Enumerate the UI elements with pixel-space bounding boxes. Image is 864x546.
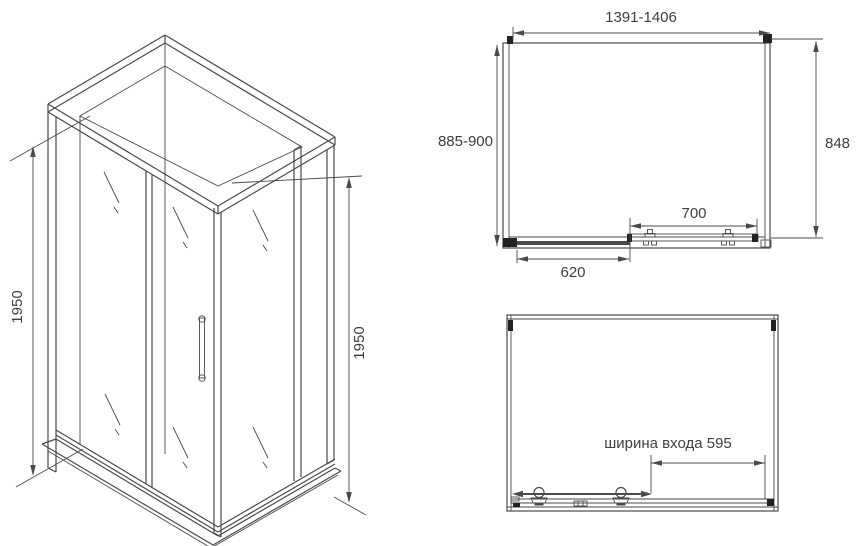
dim-width-label: 1391-1406 xyxy=(605,9,677,26)
dim-entrance: ширина входа 595 xyxy=(604,435,765,499)
iso-view: 1950 1950 xyxy=(9,35,368,546)
wall-bracket-top-left xyxy=(507,36,513,44)
plan-view: 1391-1406 885-900 848 700 620 xyxy=(438,9,850,281)
dim-entrance-label: ширина входа 595 xyxy=(604,435,732,452)
technical-drawing-sheet: 1950 1950 xyxy=(0,0,864,546)
dim-height-left-label: 1950 xyxy=(9,290,26,323)
wall-bracket-top-right xyxy=(763,34,772,43)
roller-elev-1 xyxy=(531,488,547,506)
roller-elev-2 xyxy=(613,488,629,506)
dim-depth: 885-900 xyxy=(438,45,500,246)
elevation-view: ширина входа 595 xyxy=(507,315,778,511)
dim-width: 1391-1406 xyxy=(513,9,770,41)
dim-fixed-label: 620 xyxy=(560,264,585,281)
dim-door-label: 700 xyxy=(681,205,706,222)
shower-enclosure-drawing: 1950 1950 xyxy=(0,0,864,546)
dim-side: 848 xyxy=(771,39,850,238)
sliding-door-elevation xyxy=(511,488,774,508)
dim-height-left: 1950 xyxy=(9,116,90,487)
wall-bracket-right xyxy=(771,320,776,331)
roller-plan-2 xyxy=(722,230,735,246)
dim-height-right-label: 1950 xyxy=(351,326,368,359)
plan-bottom-rail xyxy=(503,230,771,248)
roller-plan-1 xyxy=(644,230,657,246)
wall-bracket-left xyxy=(508,320,513,331)
dim-depth-label: 885-900 xyxy=(438,133,493,150)
dim-fixed: 620 xyxy=(517,250,629,281)
dim-height-right: 1950 xyxy=(232,176,368,515)
glass-marks xyxy=(104,172,268,468)
door-handle xyxy=(199,316,205,381)
dim-side-label: 848 xyxy=(825,135,850,152)
